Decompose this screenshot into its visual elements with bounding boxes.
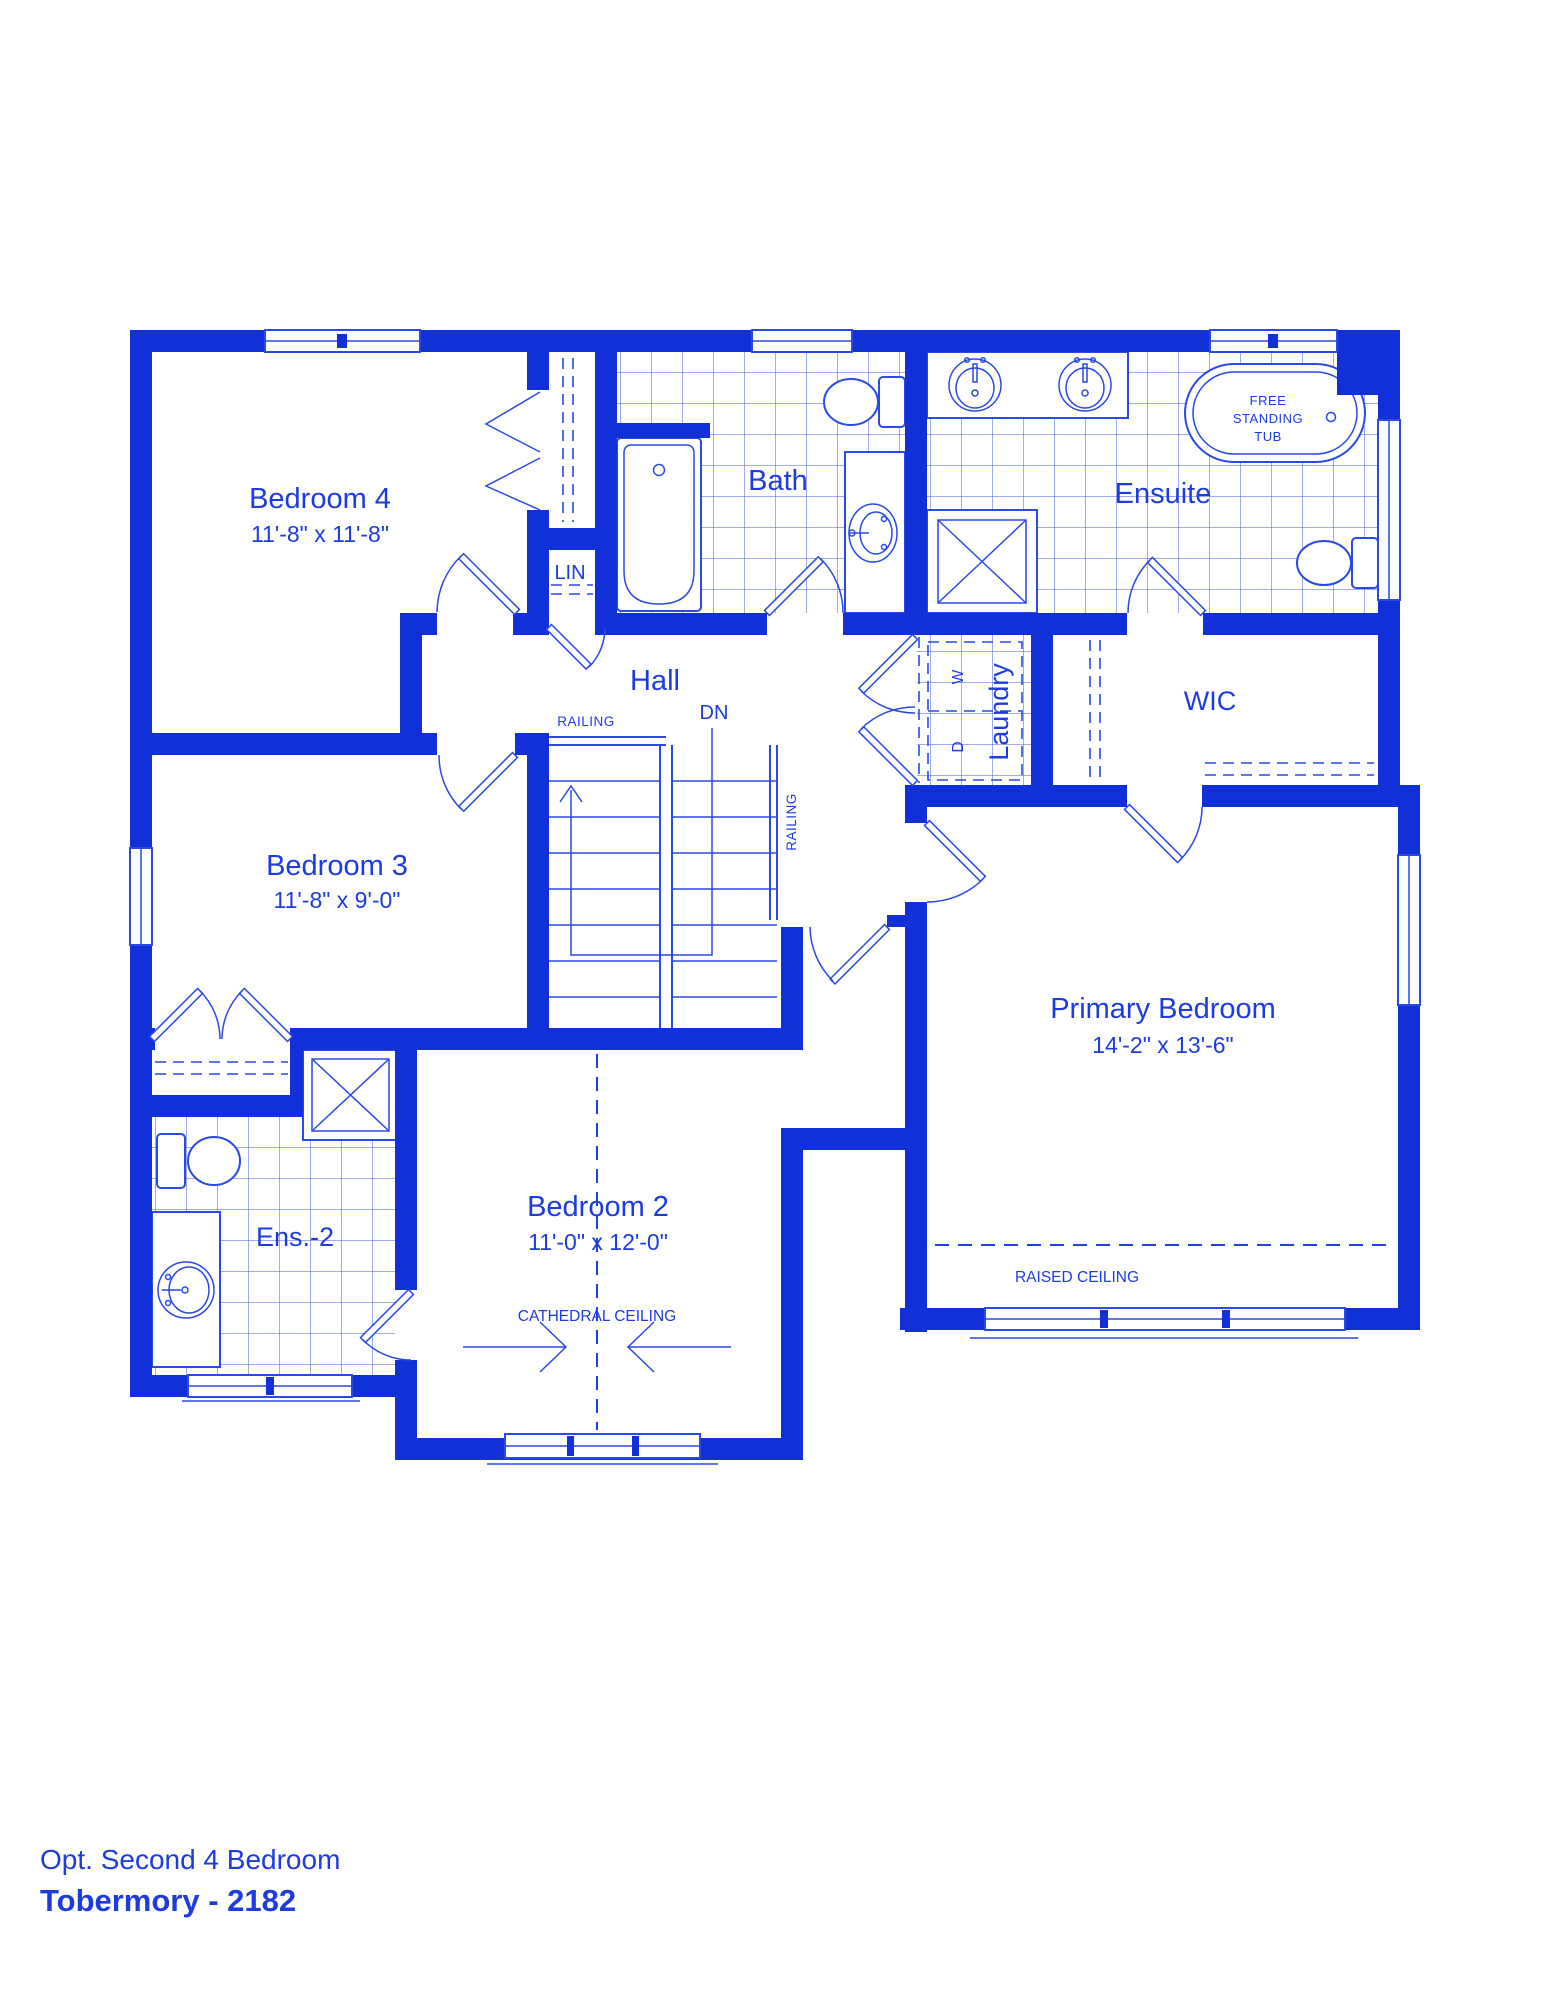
ens2-toilet [157,1134,240,1188]
wic-door [1125,805,1202,863]
lin-label: LIN [554,562,585,584]
raised-ceiling-label: RAISED CEILING [1015,1269,1139,1286]
bedroom2-label: Bedroom 2 [527,1191,669,1223]
title-block: Opt. Second 4 Bedroom Tobermory - 2182 [40,1844,340,1918]
railing-top-label: RAILING [557,714,615,729]
primary-window-right [1398,855,1420,1005]
bedroom3-door [439,753,517,812]
ensuite-window-right [1378,420,1400,600]
bedroom4-door [437,554,519,615]
bath-toilet [824,377,905,427]
floor-plan-page: Bedroom 4 11'-8" x 11'-8" Bath Ensuite H… [0,0,1546,2000]
ensuite-toilet [1297,538,1378,588]
bath-label: Bath [748,465,808,497]
dryer-label: D [950,741,967,752]
floor-plan: Bedroom 4 11'-8" x 11'-8" Bath Ensuite H… [0,0,1546,2000]
bedroom2-dims: 11'-0" x 12'-0" [528,1229,668,1255]
plan-subtitle: Opt. Second 4 Bedroom [40,1844,340,1875]
tub-label-line2: STANDING [1233,411,1303,426]
washer-label: W [950,669,967,684]
tub-label-line3: TUB [1254,429,1282,444]
bath-sink [845,452,905,613]
railing-side-label: RAILING [784,793,799,851]
tub-label-line1: FREE [1250,393,1287,408]
bedroom4-label: Bedroom 4 [249,483,391,515]
primary-window-bottom [970,1308,1358,1338]
bedroom4-closet-bifold-doors [486,392,540,510]
bedroom2-door [810,925,889,984]
primary-label: Primary Bedroom [1050,993,1276,1025]
bedroom3-window [130,848,152,945]
ensuite-window-top [1210,330,1337,352]
stair-treads [549,781,777,997]
ens2-shower [303,1050,398,1140]
staircase [549,728,777,1028]
ensuite-label: Ensuite [1115,478,1212,510]
bedroom3-label: Bedroom 3 [266,850,408,882]
bathtub [617,438,701,611]
bedroom3-dims: 11'-8" x 9'-0" [274,887,401,913]
dn-label: DN [700,702,729,724]
laundry-label: Laundry [984,663,1014,761]
primary-dims: 14'-2" x 13'-6" [1092,1032,1233,1058]
cathedral-ceiling-label: CATHEDRAL CEILING [518,1308,676,1325]
ens2-sink [152,1212,220,1367]
bedroom4-window [265,330,420,352]
wic-label: WIC [1184,686,1236,716]
bath-window [752,330,852,352]
laundry-double-doors [859,635,918,786]
ens2-window [182,1375,360,1401]
hall-label: Hall [630,665,680,697]
bedroom3-closet-double-doors [150,988,293,1041]
ensuite-vanity [927,352,1128,418]
plan-title: Tobermory - 2182 [40,1883,296,1918]
bedroom4-dims: 11'-8" x 11'-8" [251,521,389,547]
stair-direction-arrow [560,728,712,955]
ensuite-shower [927,510,1037,613]
ens2-label: Ens.-2 [256,1222,334,1252]
primary-door [925,821,986,902]
